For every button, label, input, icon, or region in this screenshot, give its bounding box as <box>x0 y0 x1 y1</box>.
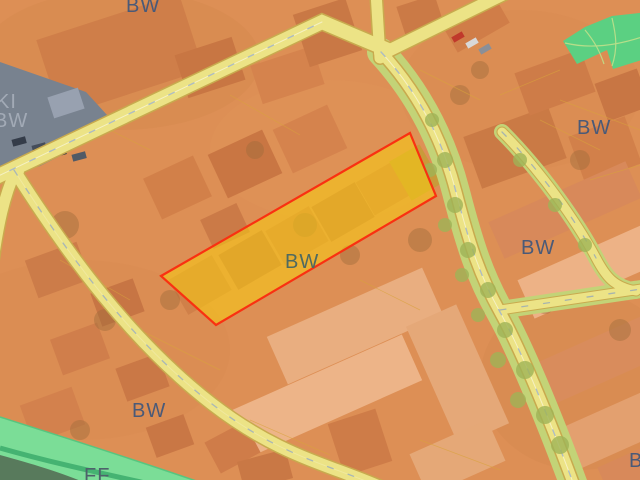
street-tree <box>551 436 569 454</box>
tree-canopy <box>70 420 90 440</box>
street-tree <box>516 361 534 379</box>
street-tree <box>578 238 592 252</box>
zone-label-ff-bottom: FF <box>84 466 110 480</box>
street-tree <box>497 322 513 338</box>
zone-label-bw-bottom-right: BW <box>629 451 640 471</box>
street-tree <box>447 197 463 213</box>
street-tree <box>490 352 506 368</box>
zone-label-bw-left: BW <box>0 111 28 131</box>
street-tree <box>437 152 453 168</box>
map-viewport[interactable]: BW KI BW BW BW BW BW BW FF <box>0 0 640 480</box>
zone-label-bw-right-mid: BW <box>521 238 555 258</box>
tree-canopy <box>609 319 631 341</box>
street-tree <box>455 268 469 282</box>
zone-label-bw-right-upper: BW <box>577 118 611 138</box>
tree-canopy <box>160 290 180 310</box>
street-tree <box>548 198 562 212</box>
tree-canopy <box>471 61 489 79</box>
zone-label-bw-top: BW <box>126 0 160 16</box>
street-tree <box>438 218 452 232</box>
street-tree <box>425 113 439 127</box>
street-tree <box>471 308 485 322</box>
zone-label-bw-center: BW <box>285 252 319 272</box>
tree-canopy <box>450 85 470 105</box>
zone-label-ki-left: KI <box>0 92 17 112</box>
street-tree <box>460 242 476 258</box>
street-tree <box>510 392 526 408</box>
street-tree <box>480 282 496 298</box>
tree-canopy <box>408 228 432 252</box>
street-tree <box>536 406 554 424</box>
street-tree <box>513 153 527 167</box>
tree-canopy <box>570 150 590 170</box>
tree-canopy <box>246 141 264 159</box>
zone-label-bw-bottom-left: BW <box>132 401 166 421</box>
